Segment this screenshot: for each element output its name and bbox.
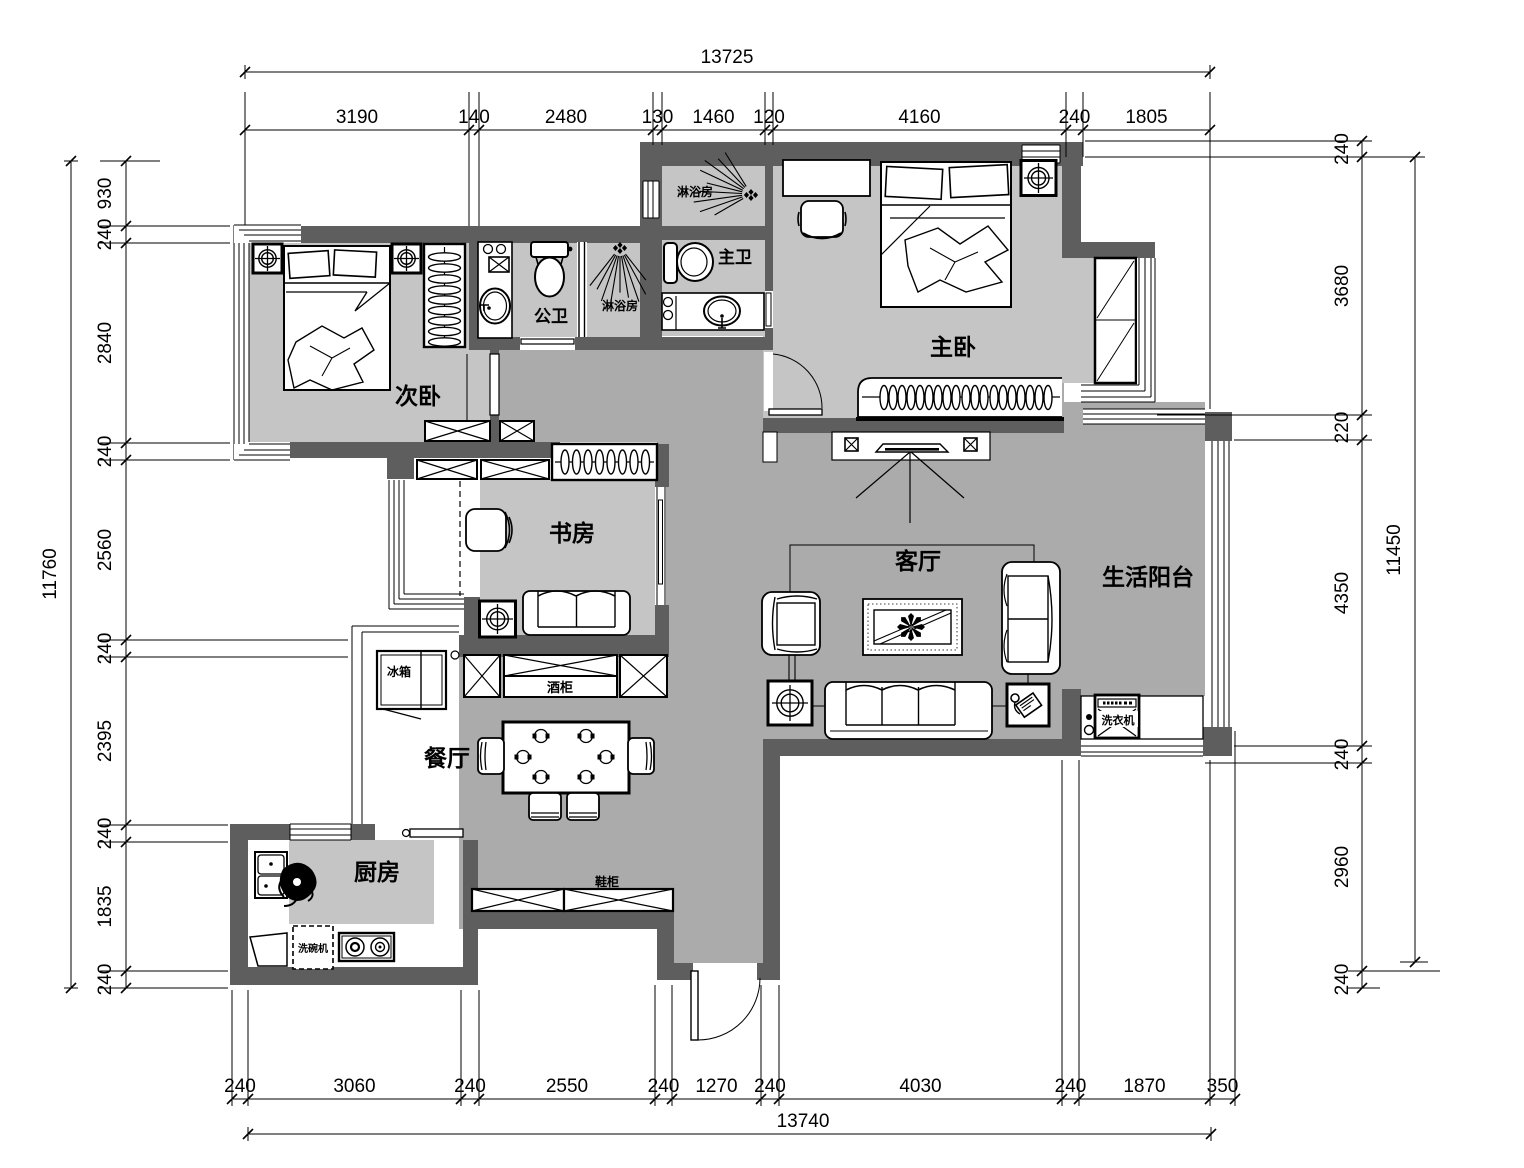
- svg-text:餐厅: 餐厅: [424, 745, 470, 771]
- svg-text:240: 240: [754, 1076, 786, 1097]
- svg-text:2560: 2560: [95, 529, 116, 571]
- svg-text:240: 240: [648, 1076, 680, 1097]
- svg-text:主卫: 主卫: [718, 247, 752, 267]
- svg-text:240: 240: [1055, 1076, 1087, 1097]
- svg-text:2960: 2960: [1332, 846, 1353, 888]
- svg-text:冰箱: 冰箱: [387, 664, 411, 679]
- svg-text:书房: 书房: [549, 520, 595, 546]
- svg-text:酒柜: 酒柜: [547, 680, 573, 695]
- svg-text:120: 120: [753, 107, 785, 128]
- svg-text:洗衣机: 洗衣机: [1102, 713, 1135, 727]
- svg-text:厨房: 厨房: [354, 859, 400, 885]
- svg-text:1460: 1460: [692, 107, 734, 128]
- svg-text:2550: 2550: [546, 1076, 588, 1097]
- svg-text:淋浴房: 淋浴房: [677, 184, 713, 199]
- svg-text:240: 240: [454, 1076, 486, 1097]
- svg-text:240: 240: [95, 633, 116, 665]
- svg-text:1835: 1835: [95, 885, 116, 927]
- svg-text:洗碗机: 洗碗机: [298, 942, 328, 955]
- svg-text:3060: 3060: [333, 1076, 375, 1097]
- svg-text:13740: 13740: [777, 1111, 830, 1132]
- svg-text:1870: 1870: [1123, 1076, 1165, 1097]
- svg-text:240: 240: [224, 1076, 256, 1097]
- svg-text:淋浴房: 淋浴房: [602, 298, 638, 313]
- svg-text:4160: 4160: [898, 107, 940, 128]
- svg-text:240: 240: [95, 964, 116, 996]
- svg-text:11450: 11450: [1384, 524, 1405, 575]
- svg-text:3190: 3190: [336, 107, 378, 128]
- svg-text:客厅: 客厅: [895, 548, 941, 574]
- svg-text:鞋柜: 鞋柜: [595, 874, 619, 889]
- svg-text:4030: 4030: [899, 1076, 941, 1097]
- svg-text:次卧: 次卧: [395, 383, 441, 409]
- svg-text:240: 240: [95, 219, 116, 251]
- svg-text:13725: 13725: [701, 47, 754, 68]
- svg-text:主卧: 主卧: [930, 334, 976, 360]
- svg-text:1805: 1805: [1125, 107, 1167, 128]
- svg-text:11760: 11760: [40, 548, 61, 599]
- svg-text:240: 240: [95, 818, 116, 850]
- svg-text:3680: 3680: [1332, 265, 1353, 307]
- svg-text:4350: 4350: [1332, 572, 1353, 614]
- svg-text:140: 140: [458, 107, 490, 128]
- svg-text:240: 240: [95, 436, 116, 468]
- svg-text:生活阳台: 生活阳台: [1102, 564, 1194, 590]
- svg-text:2840: 2840: [95, 322, 116, 364]
- svg-text:2480: 2480: [545, 107, 587, 128]
- svg-text:240: 240: [1332, 739, 1353, 771]
- svg-text:350: 350: [1207, 1076, 1239, 1097]
- svg-text:公卫: 公卫: [534, 307, 568, 326]
- svg-text:240: 240: [1059, 107, 1091, 128]
- svg-text:930: 930: [95, 178, 116, 210]
- svg-text:130: 130: [642, 107, 674, 128]
- svg-text:240: 240: [1332, 133, 1353, 165]
- svg-text:2395: 2395: [95, 720, 116, 762]
- svg-text:1270: 1270: [695, 1076, 737, 1097]
- svg-text:240: 240: [1332, 964, 1353, 996]
- svg-text:220: 220: [1332, 412, 1353, 444]
